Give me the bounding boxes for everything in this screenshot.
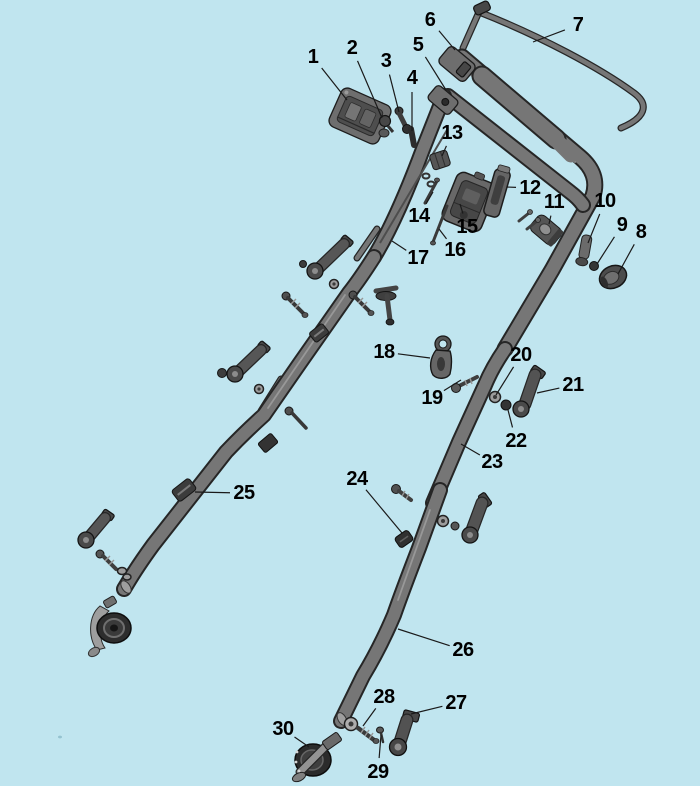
washer-mid-upper	[330, 280, 339, 289]
part-number-label-24: 24	[346, 468, 369, 490]
part-number-label-23: 23	[481, 451, 503, 473]
washer-right	[438, 516, 449, 527]
part-number-label-21: 21	[562, 374, 584, 396]
part-number-label-27: 27	[445, 692, 467, 714]
part-number-label-13: 13	[441, 122, 463, 144]
pivot-pin	[411, 129, 414, 145]
washer-28	[345, 718, 358, 731]
part-number-label-17: 17	[407, 247, 429, 269]
part-number-label-28: 28	[373, 686, 395, 708]
part-number-label-18: 18	[373, 341, 395, 363]
part-number-label-2: 2	[347, 37, 358, 59]
part-number-label-3: 3	[381, 50, 392, 72]
part-number-label-11: 11	[544, 191, 565, 213]
part-number-label-20: 20	[510, 344, 532, 366]
washer-mid-lower	[255, 385, 264, 394]
part-number-label-7: 7	[573, 14, 584, 36]
part-number-label-19: 19	[421, 387, 443, 409]
part-number-label-12: 12	[519, 177, 541, 199]
part-number-label-30: 30	[272, 718, 294, 740]
part-number-label-14: 14	[408, 205, 431, 227]
nut-22	[501, 400, 511, 410]
leader-line-25	[195, 492, 230, 493]
stray-mark	[58, 736, 62, 739]
part-number-label-16: 16	[444, 239, 466, 261]
part-number-label-10: 10	[594, 190, 616, 212]
washer-20	[490, 392, 501, 403]
exploded-parts-diagram: 1234567891011121314151617181920212223242…	[0, 0, 700, 786]
part-number-label-22: 22	[505, 430, 527, 452]
part-number-label-25: 25	[233, 482, 255, 504]
part-number-label-15: 15	[456, 216, 478, 238]
part-number-label-6: 6	[425, 9, 436, 31]
part-number-label-5: 5	[413, 34, 424, 56]
spacer-right	[451, 522, 459, 530]
part-number-label-8: 8	[636, 221, 647, 243]
part-number-label-29: 29	[367, 761, 389, 783]
part-number-label-26: 26	[452, 639, 474, 661]
part-number-label-1: 1	[308, 46, 319, 68]
part-number-label-4: 4	[407, 67, 419, 89]
part-number-label-9: 9	[617, 214, 628, 236]
